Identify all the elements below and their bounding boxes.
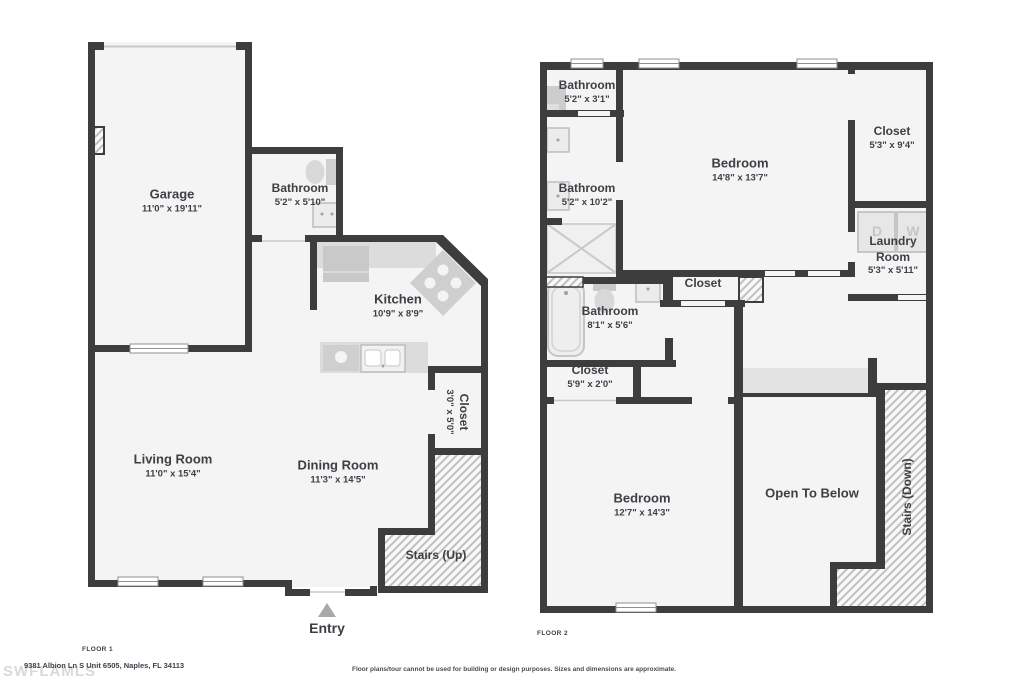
room-name: Closet: [567, 363, 612, 379]
room-name: Garage: [142, 186, 202, 203]
room-label-entry: Entry: [309, 619, 345, 637]
floor1-tag: FLOOR 1: [82, 646, 113, 653]
room-label-closet-mid: Closet: [685, 276, 722, 292]
room-dims: 5'3" x 5'11": [868, 265, 918, 277]
room-dims: 3'0" x 5'0": [443, 389, 455, 434]
room-name: Dining Room: [298, 457, 379, 474]
hatch-strip: [542, 277, 583, 287]
room-name: Stairs (Down): [900, 458, 916, 535]
room-label-bathroom-f1: Bathroom 5'2" x 5'10": [272, 181, 329, 209]
room-label-bedroom-bottom: Bedroom 12'7" x 14'3": [613, 490, 670, 519]
room-name: Bedroom: [711, 155, 768, 172]
room-name: Closet: [685, 276, 722, 292]
room-label-closet-right: Closet 5'3" x 9'4": [869, 124, 914, 152]
room-dims: 8'1" x 5'6": [582, 320, 639, 332]
room-name: Entry: [309, 619, 345, 637]
floor1-plan: [88, 42, 488, 617]
room-label-kitchen: Kitchen 10'9" x 8'9": [373, 291, 424, 320]
room-label-bathroom-small: Bathroom 5'2" x 3'1": [559, 78, 616, 106]
room-name: Bathroom: [559, 78, 616, 94]
room-label-bathroom-mid: Bathroom 8'1" x 5'6": [582, 304, 639, 332]
room-name: Bathroom: [272, 181, 329, 197]
room-dims: 11'3" x 14'5": [298, 474, 379, 486]
room-dims: 5'3" x 9'4": [869, 140, 914, 152]
room-label-stairs-up: Stairs (Up): [406, 548, 467, 564]
floorplan-canvas: Garage 11'0" x 19'11" Bathroom 5'2" x 5'…: [0, 0, 1024, 682]
disclaimer-text: Floor plans/tour cannot be used for buil…: [352, 666, 676, 673]
room-name: Bedroom: [613, 490, 670, 507]
room-dims: 5'9" x 2'0": [567, 379, 612, 391]
room-label-dining-room: Dining Room 11'3" x 14'5": [298, 457, 379, 486]
hatch-block: [739, 277, 763, 302]
room-name: Open To Below: [765, 486, 859, 503]
floor2-tag: FLOOR 2: [537, 630, 568, 637]
room-name: Closet: [455, 389, 471, 434]
room-label-bathroom-left: Bathroom 5'2" x 10'2": [559, 181, 616, 209]
room-dims: 5'2" x 10'2": [559, 197, 616, 209]
open-below-ledge: [743, 368, 870, 395]
room-name: Bathroom: [582, 304, 639, 320]
room-label-garage: Garage 11'0" x 19'11": [142, 186, 202, 215]
room-label-bedroom-top: Bedroom 14'8" x 13'7": [711, 155, 768, 184]
room-name: Bathroom: [559, 181, 616, 197]
room-dims: 12'7" x 14'3": [613, 507, 670, 519]
room-dims: 14'8" x 13'7": [711, 172, 768, 184]
room-name: Kitchen: [373, 291, 424, 308]
room-name: Closet: [869, 124, 914, 140]
room-label-stairs-down: Stairs (Down): [900, 458, 916, 535]
property-address: 9381 Albion Ln S Unit 6505, Naples, FL 3…: [24, 661, 184, 670]
floorplan-drawing: [0, 0, 1024, 682]
room-label-open-to-below: Open To Below: [765, 486, 859, 503]
room-name: Stairs (Up): [406, 548, 467, 564]
room-name-line1: Laundry: [868, 234, 918, 250]
room-name-line2: Room: [868, 250, 918, 266]
room-dims: 10'9" x 8'9": [373, 308, 424, 320]
room-label-closet-left: Closet 5'9" x 2'0": [567, 363, 612, 391]
room-dims: 11'0" x 15'4": [134, 468, 213, 480]
room-name: Living Room: [134, 451, 213, 468]
room-dims: 5'2" x 5'10": [272, 197, 329, 209]
room-label-closet-f1: Closet 3'0" x 5'0": [443, 389, 471, 434]
room-dims: 5'2" x 3'1": [559, 94, 616, 106]
room-dims: 11'0" x 19'11": [142, 203, 202, 215]
room-label-laundry: Laundry Room 5'3" x 5'11": [868, 234, 918, 278]
room-label-living-room: Living Room 11'0" x 15'4": [134, 451, 213, 480]
fridge-icon: [323, 246, 369, 282]
entry-arrow-icon: [318, 603, 336, 617]
